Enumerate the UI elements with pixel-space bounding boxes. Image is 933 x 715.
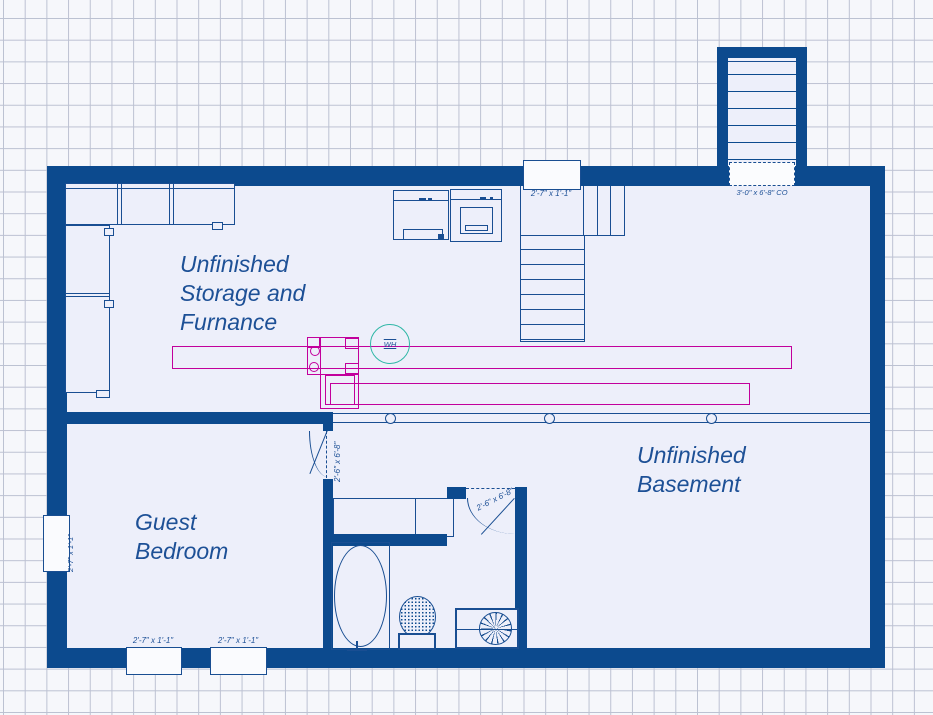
bulkhead-opening-label[interactable]: 3'-0" x 6'-8" CO	[717, 188, 807, 197]
support-post[interactable]	[385, 413, 396, 424]
stair-window-label[interactable]: 2'-7" x 1'-1"	[518, 189, 584, 198]
floor-plan-canvas: 3'-0" x 6'-8" CO 2'-7" x 1'-1"	[0, 0, 933, 715]
shelf-tab	[104, 228, 114, 236]
bedroom-left-window-label[interactable]: 2'-7" x 1'-1"	[66, 516, 75, 572]
bulkhead-stairs[interactable]	[728, 58, 796, 166]
dryer[interactable]	[450, 189, 502, 242]
shelf-divider	[173, 184, 174, 224]
shelf-divider	[66, 293, 109, 294]
water-heater[interactable]: WH	[370, 324, 410, 364]
shelf-tab	[104, 300, 114, 308]
dryer-knob	[480, 197, 486, 200]
dryer-door	[460, 207, 493, 234]
water-heater-label: WH	[384, 340, 397, 349]
bulkhead-top-step-line	[728, 61, 796, 62]
bedroom-bottom-window-1[interactable]	[126, 647, 182, 675]
toilet-tank	[398, 633, 436, 650]
exhaust-fan[interactable]	[479, 612, 512, 645]
bathroom-door-jamb-left	[447, 487, 466, 499]
bedroom-door-label[interactable]: 2'-6" x 6'-8"	[333, 430, 342, 482]
bedroom-door-jamb	[323, 412, 333, 431]
shelf-divider	[169, 184, 170, 224]
furnace-tab	[345, 338, 359, 349]
stairs-straight-run[interactable]	[520, 235, 585, 342]
bedroom-closet[interactable]	[333, 498, 454, 537]
stair-riser-line	[610, 186, 611, 235]
washer[interactable]	[393, 190, 449, 240]
closet-divider	[415, 499, 416, 536]
room-label-basement[interactable]: Unfinished Basement	[637, 441, 746, 499]
furnace-inner-box	[325, 375, 355, 405]
shelf-divider	[66, 296, 109, 297]
toilet[interactable]	[399, 596, 436, 638]
bedroom-bottom-window-2[interactable]	[210, 647, 267, 675]
shelf-foot	[212, 222, 223, 230]
duct-upper[interactable]	[172, 346, 792, 369]
shelf-top-edge-line	[66, 188, 234, 189]
stair-riser-line	[597, 186, 598, 235]
room-label-bedroom[interactable]: Guest Bedroom	[135, 508, 228, 566]
washer-knob	[419, 198, 426, 201]
bulkhead-cased-opening[interactable]	[729, 162, 795, 186]
bedroom-bottom-window-1-label[interactable]: 2'-7" x 1'-1"	[117, 636, 189, 645]
support-post[interactable]	[706, 413, 717, 424]
shelf-divider	[117, 184, 118, 224]
washer-foot	[438, 234, 444, 240]
shelf-unit-left[interactable]	[65, 225, 110, 393]
bedroom-north-wall	[67, 412, 323, 424]
furnace-pipe	[310, 346, 320, 356]
dryer-knob	[490, 197, 493, 200]
shelf-foot	[96, 390, 110, 398]
furnace-tab	[345, 363, 359, 374]
shelf-divider	[121, 184, 122, 224]
room-label-storage[interactable]: Unfinished Storage and Furnance	[180, 250, 305, 337]
bathtub[interactable]	[334, 545, 387, 647]
shelf-unit-top[interactable]	[65, 183, 235, 225]
support-beam[interactable]	[333, 413, 870, 423]
tub-faucet-stem	[356, 641, 358, 651]
support-post[interactable]	[544, 413, 555, 424]
washer-drawer	[403, 229, 443, 240]
dryer-door-slot	[465, 225, 488, 231]
bedroom-bottom-window-2-label[interactable]: 2'-7" x 1'-1"	[202, 636, 274, 645]
duct-lower[interactable]	[330, 383, 750, 405]
stair-window[interactable]	[523, 160, 581, 190]
washer-knob	[428, 198, 432, 201]
dryer-panel-line	[451, 199, 501, 200]
furnace-pipe	[309, 362, 319, 372]
